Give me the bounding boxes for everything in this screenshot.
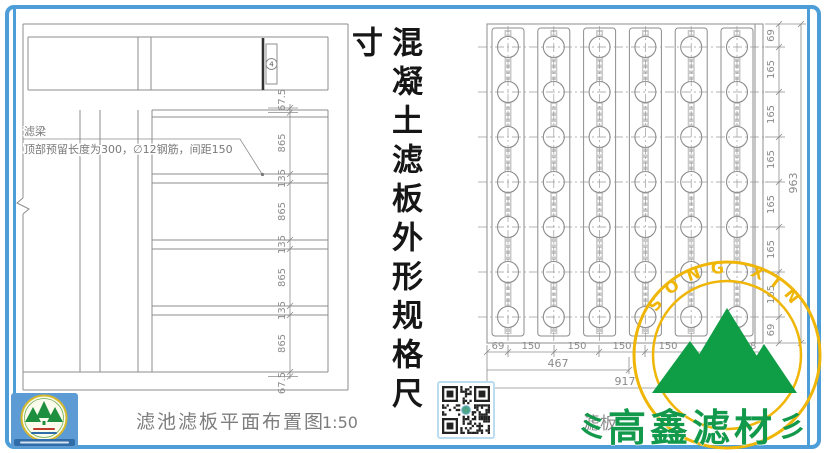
left-drawing-caption: 滤池滤板平面布置图 <box>136 411 325 433</box>
pool-outline <box>23 24 348 390</box>
dim-partial-width: 467 <box>548 357 569 370</box>
company-seal-icon <box>11 393 78 448</box>
left-dim-labels: 67.5 865 135 865 135 865 135 865 67.5 <box>277 89 288 394</box>
leader-dot <box>261 173 264 176</box>
wall-break-symbol <box>17 198 29 214</box>
dim-label: 165 <box>766 240 777 259</box>
dim-label: 165 <box>766 195 777 214</box>
qr-module-pattern <box>442 386 490 434</box>
dim-label: 150 <box>658 341 677 352</box>
dim-label: 165 <box>766 60 777 79</box>
brand-text: 高鑫滤材 <box>608 397 776 452</box>
beam-label: 滤梁 <box>24 124 46 138</box>
dim-label: 69 <box>766 324 777 337</box>
drawing-sheet: 4 滤梁 顶部预留长度为300，∅12钢筋，间距150 67.5 865 135… <box>0 0 826 453</box>
qr-code-icon <box>437 381 495 439</box>
left-drawing-plan: 4 滤梁 顶部预留长度为300，∅12钢筋，间距150 67.5 865 135… <box>17 24 358 433</box>
dim-label: 135 <box>277 235 288 254</box>
dim-label: 165 <box>766 150 777 169</box>
plate-outline <box>487 24 763 343</box>
wave-flourish-icon: 彡 <box>578 405 606 445</box>
rebar-note: 顶部预留长度为300，∅12钢筋，间距150 <box>24 142 233 156</box>
dim-label: 865 <box>277 133 288 152</box>
dim-total-height: 963 <box>787 173 800 194</box>
vertical-title: 混凝土滤板外形规格尺寸 <box>384 26 424 440</box>
wave-flourish-icon: 彡 <box>778 405 806 445</box>
plate-slot-grid <box>478 26 768 341</box>
dim-label: 150 <box>521 341 540 352</box>
dim-label: 165 <box>766 105 777 124</box>
dim-label: 69 <box>492 341 505 352</box>
dim-label: 150 <box>567 341 586 352</box>
dim-label: 150 <box>612 341 631 352</box>
dim-label: 135 <box>277 301 288 320</box>
dim-label: 67.5 <box>277 372 288 394</box>
brand-watermark: 彡 高鑫滤材 彡 <box>576 397 808 452</box>
dim-label: 865 <box>277 202 288 221</box>
detail-marker-number: 4 <box>269 61 274 69</box>
seal-arc-text: SONG XIN <box>644 258 809 315</box>
dim-label: 865 <box>277 268 288 287</box>
dim-total-width: 917 <box>615 375 636 388</box>
dim-label: 865 <box>277 334 288 353</box>
dim-label: 69 <box>766 29 777 42</box>
top-beam-band <box>28 37 328 90</box>
left-drawing-scale: 1:50 <box>322 413 358 432</box>
dim-label: 135 <box>277 169 288 188</box>
